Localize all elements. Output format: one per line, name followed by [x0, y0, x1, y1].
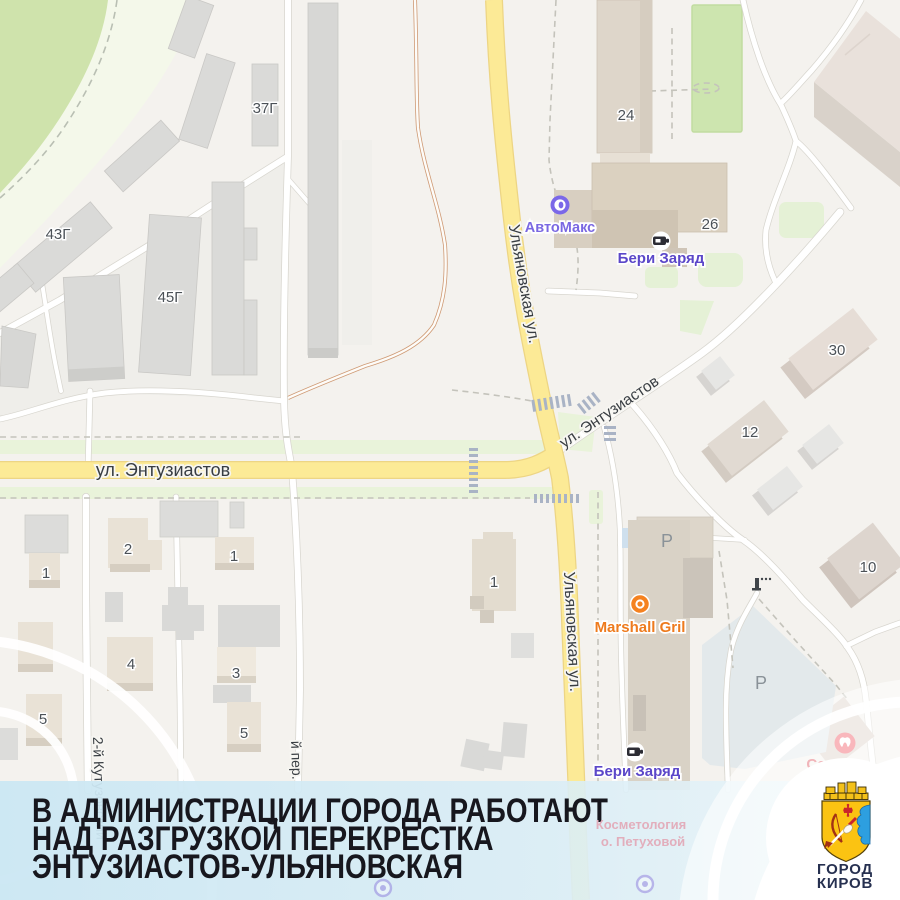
svg-text:Бери Заряд: Бери Заряд: [618, 250, 705, 267]
svg-text:10: 10: [860, 559, 877, 576]
svg-text:45Г: 45Г: [158, 289, 183, 306]
svg-text:30: 30: [829, 342, 846, 359]
svg-text:о. Петуховой: о. Петуховой: [601, 834, 685, 849]
svg-text:37Г: 37Г: [253, 100, 278, 117]
svg-text:12: 12: [742, 424, 759, 441]
svg-text:Marshall Gril: Marshall Gril: [595, 619, 686, 636]
svg-text:P: P: [755, 673, 767, 693]
svg-text:Косметология: Косметология: [596, 817, 686, 832]
svg-text:3: 3: [232, 665, 240, 682]
svg-text:ул. Энтузиастов: ул. Энтузиастов: [96, 460, 230, 480]
svg-text:ЭНТУЗИАСТОВ-УЛЬЯНОВСКАЯ: ЭНТУЗИАСТОВ-УЛЬЯНОВСКАЯ: [32, 847, 463, 885]
svg-text:1: 1: [490, 574, 498, 591]
svg-text:Бери Заряд: Бери Заряд: [594, 763, 681, 780]
svg-text:5: 5: [240, 725, 248, 742]
svg-text:1: 1: [42, 565, 50, 582]
svg-text:КИРОВ: КИРОВ: [817, 875, 873, 892]
svg-text:43Г: 43Г: [46, 226, 71, 243]
svg-text:26: 26: [702, 216, 719, 233]
svg-text:24: 24: [618, 107, 635, 124]
svg-text:4: 4: [127, 656, 135, 673]
svg-text:2: 2: [124, 541, 132, 558]
svg-text:1: 1: [230, 548, 238, 565]
svg-text:P: P: [661, 531, 673, 551]
svg-text:й пер.: й пер.: [288, 741, 305, 780]
svg-text:АвтоМакс: АвтоМакс: [525, 220, 595, 236]
